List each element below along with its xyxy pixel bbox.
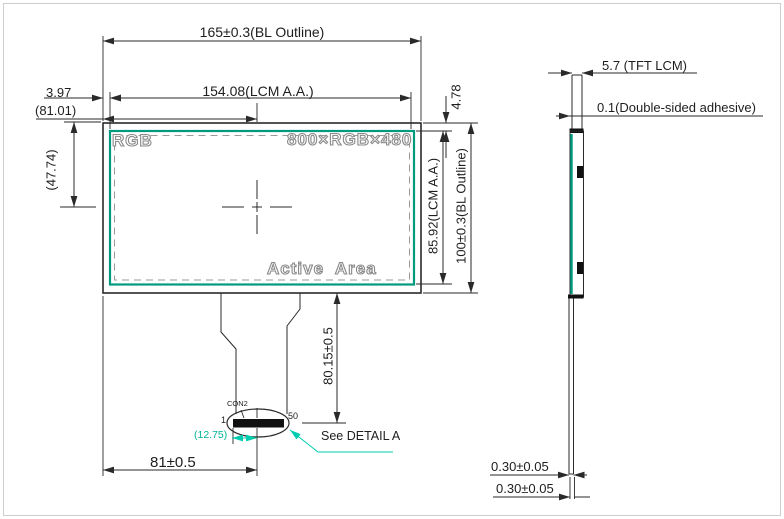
side-view	[490, 73, 763, 497]
side-clip-upper	[577, 166, 583, 178]
dim-aa-width-label: 154.08(LCM A.A.)	[202, 84, 313, 98]
dim-center-x-label: (81.01)	[35, 104, 76, 117]
pin-50-label: 50	[288, 412, 298, 421]
side-dimension-lines	[490, 73, 763, 497]
side-clip-lower	[577, 262, 583, 274]
active-area-label: Active Area	[267, 260, 377, 277]
dim-aa-height-label: 85.92(LCM A.A.)	[427, 158, 440, 254]
dim-pin-offset-label: (12.75)	[194, 430, 227, 441]
dim-center-y-label: (47.74)	[45, 149, 58, 190]
dim-thickness-label: 5.7 (TFT LCM)	[602, 59, 687, 72]
dim-connector-x-label: 81±0.5	[150, 455, 196, 470]
dim-tape-upper-label: 0.30±0.05	[491, 460, 549, 473]
resolution-label: 800×RGB×480	[287, 131, 412, 148]
lcd-module-drawing: 165±0.3(BL Outline) 154.08(LCM A.A.) 3.9…	[0, 0, 784, 519]
connector-bar	[233, 419, 284, 428]
see-detail-a-label: See DETAIL A	[321, 430, 400, 443]
dimension-lines	[36, 41, 471, 470]
dim-bl-height-label: 100±0.3(BL Outline)	[455, 148, 468, 264]
connector-name-label: CON2	[227, 400, 248, 408]
connector-con2	[227, 409, 289, 437]
dim-top-border-label: 4.78	[450, 84, 463, 109]
dim-left-border-label: 3.97	[46, 86, 71, 99]
center-mark	[222, 180, 292, 234]
dim-fpc-length-label: 80.15±0.5	[322, 327, 335, 385]
pin-1-label: 1	[221, 416, 226, 425]
dim-adhesive-label: 0.1(Double-sided adhesive)	[597, 101, 756, 114]
fpc-flex-outline	[221, 293, 300, 414]
dim-tape-lower-label: 0.30±0.05	[496, 482, 554, 495]
dim-bl-width-label: 165±0.3(BL Outline)	[200, 25, 325, 39]
rgb-label: RGB	[112, 132, 153, 149]
